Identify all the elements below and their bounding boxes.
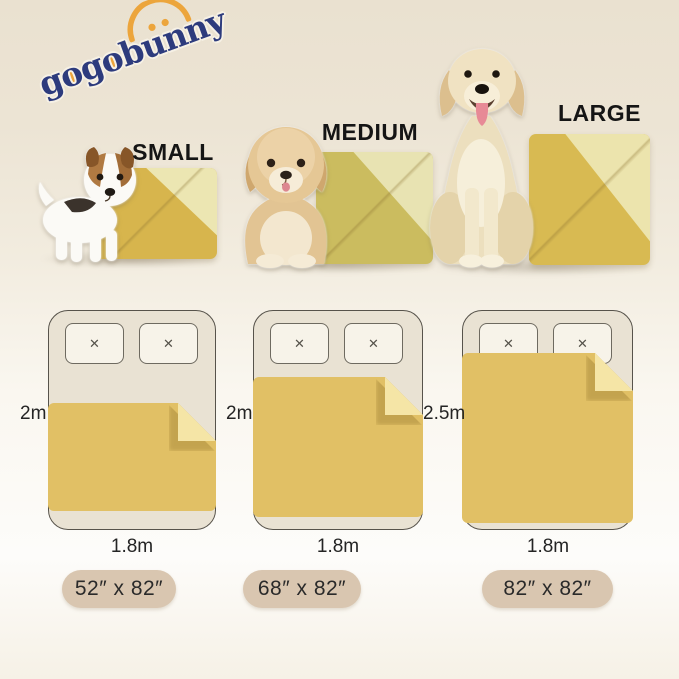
size-pill-medium: 68″ x 82″ <box>243 570 361 608</box>
size-label-medium: MEDIUM <box>310 119 430 146</box>
pillow-stitch-icon: ✕ <box>89 337 100 350</box>
diagram-blanket <box>462 353 633 523</box>
pillow-stitch-icon: ✕ <box>368 337 379 350</box>
pillow: ✕ <box>139 323 198 364</box>
diagram-blanket <box>48 403 216 511</box>
pillow: ✕ <box>65 323 124 364</box>
bed-diagram-small: ✕ ✕ <box>48 310 216 530</box>
folded-corner <box>595 353 633 391</box>
bed-width-label-large: 1.8m <box>508 536 588 558</box>
bed-width-label-small: 1.8m <box>92 536 172 558</box>
bed-height-label-small: 2m <box>20 403 46 425</box>
blanket-crease <box>529 134 650 265</box>
size-guide-infographic: gogobunny SMALL <box>0 0 679 679</box>
pillow: ✕ <box>270 323 329 364</box>
pillow-stitch-icon: ✕ <box>503 337 514 350</box>
size-pill-small: 52″ x 82″ <box>62 570 176 608</box>
bed-diagram-medium: ✕ ✕ <box>253 310 423 530</box>
pillow: ✕ <box>344 323 403 364</box>
diagram-blanket <box>253 377 423 517</box>
pillow-stitch-icon: ✕ <box>577 337 588 350</box>
pillow-stitch-icon: ✕ <box>294 337 305 350</box>
bed-height-label-medium: 2m <box>226 403 252 425</box>
size-pill-large: 82″ x 82″ <box>482 570 613 608</box>
product-blanket-large <box>529 134 650 265</box>
dog-illustration-golden-retriever <box>420 28 544 270</box>
bed-diagram-large: ✕ ✕ <box>462 310 633 530</box>
folded-corner <box>385 377 423 415</box>
size-label-large: LARGE <box>552 100 647 127</box>
bed-width-label-medium: 1.8m <box>298 536 378 558</box>
size-label-small: SMALL <box>123 139 223 166</box>
pillow-stitch-icon: ✕ <box>163 337 174 350</box>
bed-height-label-large: 2.5m <box>423 403 465 425</box>
brand-logo: gogobunny <box>34 2 236 133</box>
folded-corner <box>178 403 216 441</box>
